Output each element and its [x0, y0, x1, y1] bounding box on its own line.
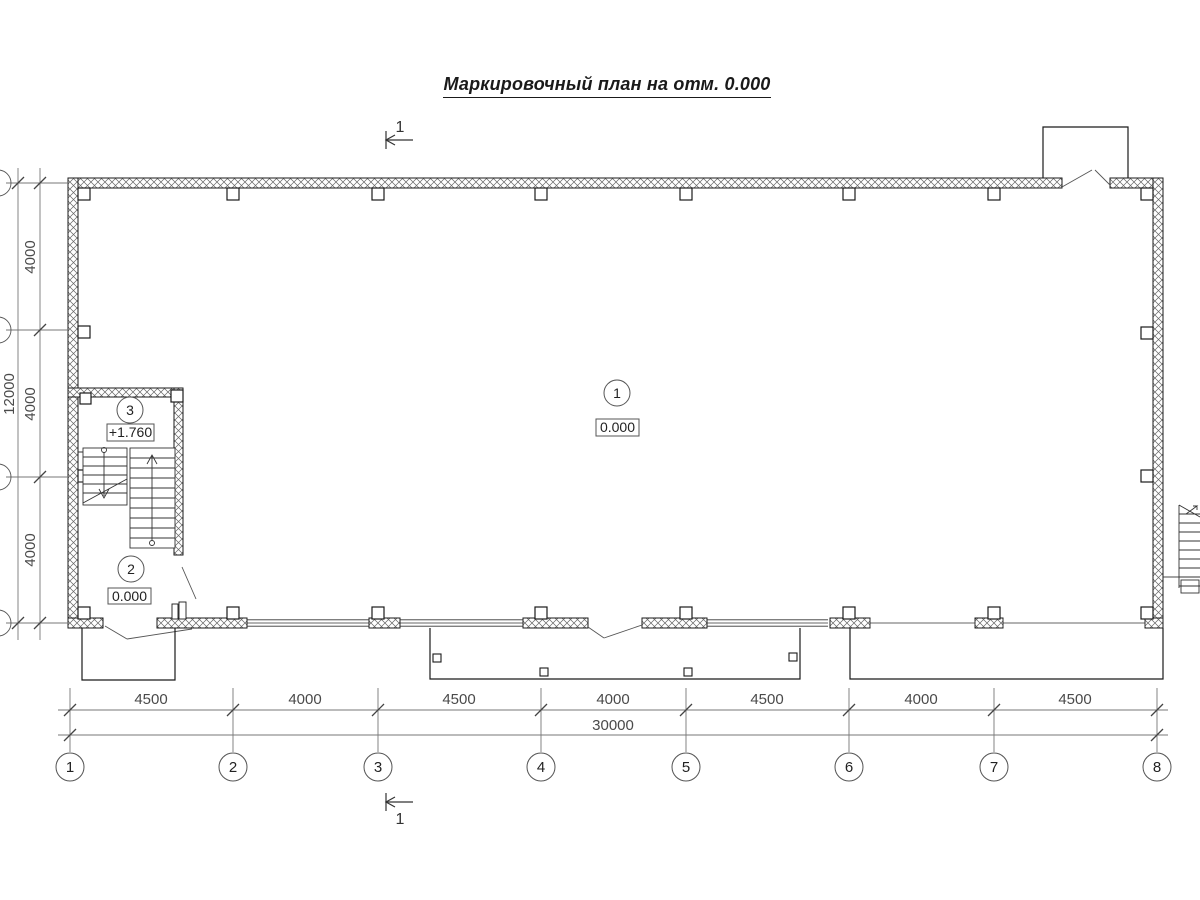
room-1-number: 1: [613, 385, 621, 401]
col-dim-4: 4000: [596, 691, 629, 708]
row-dim-1: 4000: [22, 240, 39, 273]
floor-plan-drawing: 4000 4000 4000 12000 4500 4000 4500 4000…: [0, 0, 1200, 900]
row-dim-2: 4000: [22, 387, 39, 420]
section-mark-bottom: 1: [386, 793, 413, 828]
room-marker-3: 3 +1.760: [107, 397, 154, 441]
grid-bubble-1: 1: [66, 759, 74, 776]
col-dim-3: 4500: [442, 691, 475, 708]
col-dim-6: 4000: [904, 691, 937, 708]
grid-bubble-6: 6: [845, 759, 853, 776]
grid-bubble-5: 5: [682, 759, 690, 776]
grid-bubble-8: 8: [1153, 759, 1161, 776]
room-3-elevation: +1.760: [109, 424, 152, 440]
section-mark-bottom-label: 1: [396, 811, 405, 828]
drawing-sheet: Маркировочный план на отм. 0.000: [0, 0, 1200, 900]
grid-bubble-4: 4: [537, 759, 545, 776]
room-marker-2: 2 0.000: [108, 556, 151, 604]
terrace-posts: [433, 653, 797, 676]
row-dimension-labels: 4000 4000 4000 12000: [1, 240, 39, 566]
room-3-number: 3: [126, 402, 134, 418]
room-2-elevation: 0.000: [112, 588, 147, 604]
col-dim-7: 4500: [1058, 691, 1091, 708]
stair-flight-up: [130, 448, 175, 548]
room-1-elevation: 0.000: [600, 419, 635, 435]
section-mark-top: 1: [386, 119, 413, 149]
room-marker-1: 1 0.000: [596, 380, 639, 436]
row-dim-3: 4000: [22, 533, 39, 566]
col-dim-2: 4000: [288, 691, 321, 708]
column-grid-bubbles: [56, 753, 1171, 781]
room-2-number: 2: [127, 561, 135, 577]
section-mark-top-label: 1: [396, 119, 405, 136]
column-dimension-labels: 4500 4000 4500 4000 4500 4000 4500 30000: [134, 691, 1091, 734]
external-stair: [1163, 505, 1200, 593]
col-dim-1: 4500: [134, 691, 167, 708]
porches: [82, 628, 1163, 680]
door-swings: [105, 170, 1110, 639]
col-dim-5: 4500: [750, 691, 783, 708]
column-grid-bubble-labels: 1 2 3 4 5 6 7 8: [66, 759, 1161, 776]
stair-flight-down: [78, 448, 127, 506]
grid-bubble-3: 3: [374, 759, 382, 776]
grid-bubble-2: 2: [229, 759, 237, 776]
grid-bubble-7: 7: [990, 759, 998, 776]
col-dim-total: 30000: [592, 717, 634, 734]
row-dim-total: 12000: [1, 373, 18, 415]
vestibule-outline: [1043, 127, 1128, 178]
